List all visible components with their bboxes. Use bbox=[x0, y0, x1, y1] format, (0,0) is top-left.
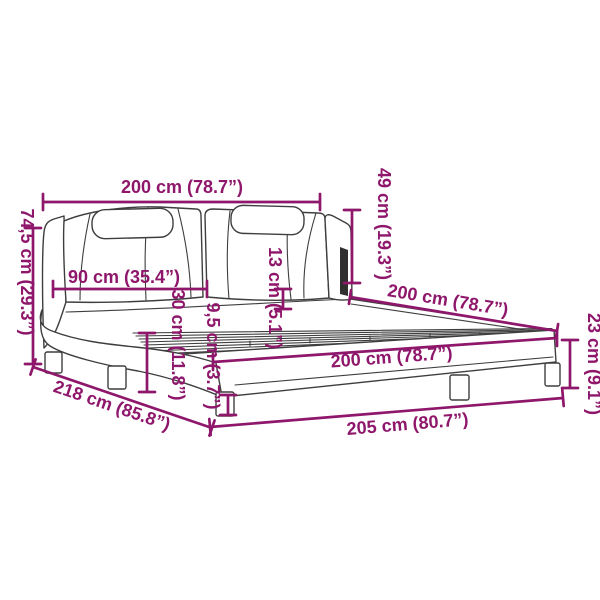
leg-front-center bbox=[450, 375, 469, 400]
label-cushion-width: 90 cm (35.4”) bbox=[68, 267, 180, 287]
label-headboard-height: 49 cm (19.3”) bbox=[374, 168, 394, 280]
dimension-labels: 200 cm (78.7”) 49 cm (19.3”) 74,5 cm (29… bbox=[17, 168, 600, 439]
leg-headboard-left bbox=[45, 352, 62, 373]
bed-dimension-diagram: 200 cm (78.7”) 49 cm (19.3”) 74,5 cm (29… bbox=[0, 0, 600, 600]
label-frame-rail-thickness: 9,5 cm (3.7”) bbox=[203, 302, 223, 409]
label-headrest-thickness: 13 cm (5.1”) bbox=[265, 247, 285, 349]
headboard-led-strip bbox=[340, 247, 348, 296]
label-side-rail-height: 30 cm (11.8”) bbox=[168, 289, 188, 400]
left-headrest-pillow bbox=[92, 208, 174, 239]
label-total-height: 74,5 cm (29.3”) bbox=[17, 208, 37, 335]
label-headboard-width: 200 cm (78.7”) bbox=[121, 177, 243, 197]
right-headrest-pillow bbox=[231, 205, 305, 235]
diagram-canvas: 200 cm (78.7”) 49 cm (19.3”) 74,5 cm (29… bbox=[0, 0, 600, 600]
label-leg-height: 23 cm (9.1”) bbox=[584, 313, 600, 415]
leg-front-right bbox=[545, 363, 560, 386]
dim-line-leg-height bbox=[562, 340, 578, 388]
leg-side-left bbox=[108, 366, 126, 389]
